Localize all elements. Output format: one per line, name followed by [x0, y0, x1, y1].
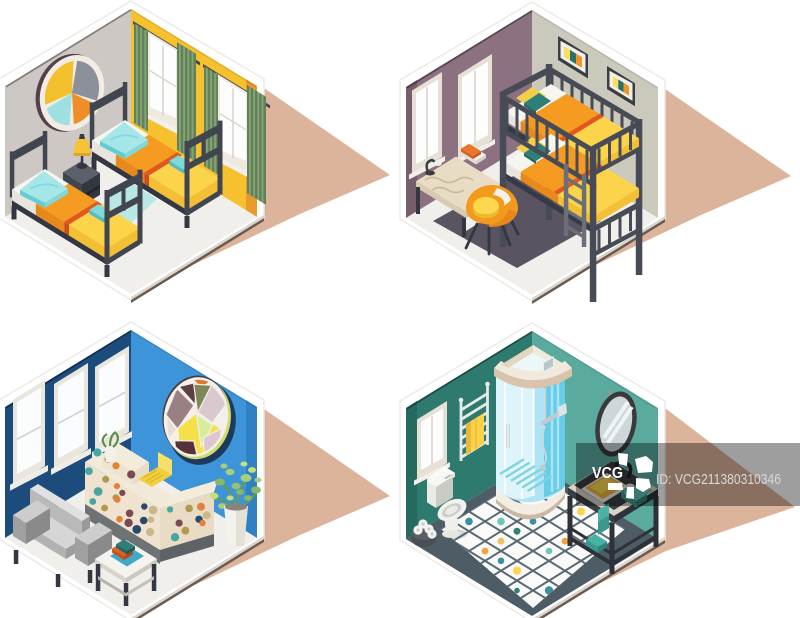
svg-text:ID: VCG211380310346: ID: VCG211380310346 — [656, 472, 781, 488]
svg-text:VCG: VCG — [592, 465, 623, 482]
